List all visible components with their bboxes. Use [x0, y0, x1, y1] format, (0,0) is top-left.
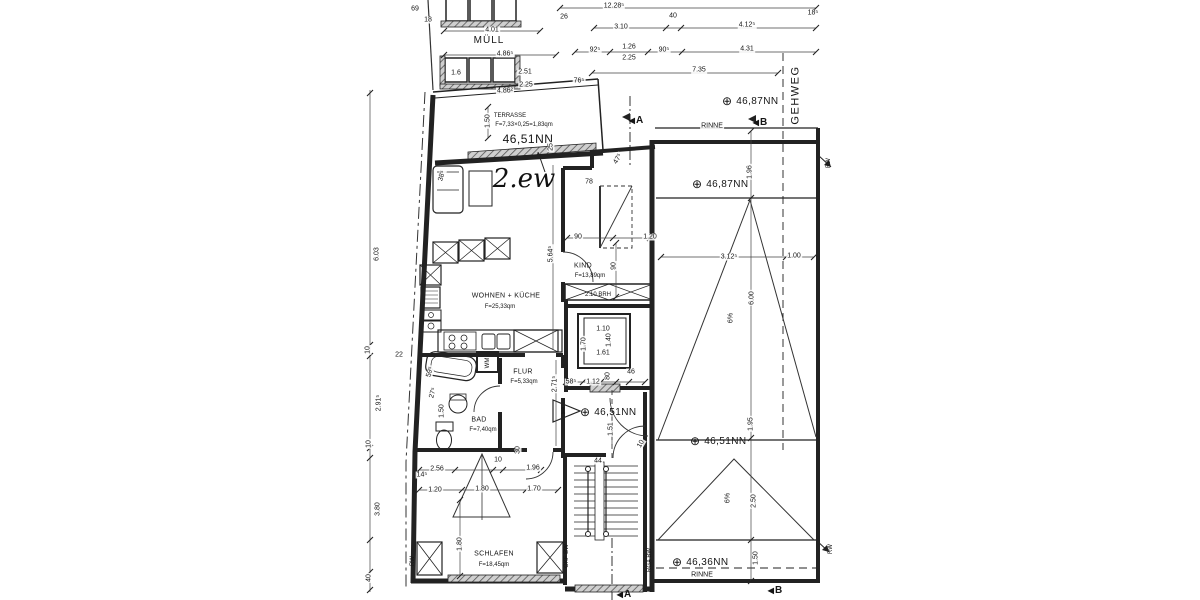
- floorplan-canvas: 69184.01MÜLL4.86⁵1.62.512.254.86²2612.28…: [0, 0, 1200, 600]
- roof-slope-lines: [658, 200, 816, 540]
- muell-bins: [440, 0, 521, 89]
- staircase: [574, 390, 643, 592]
- bathroom-fixtures: [424, 350, 498, 450]
- floorplan-drawing: [0, 0, 1200, 600]
- elevator-shaft: [565, 284, 653, 392]
- chimney-blocks: [417, 542, 563, 582]
- kitchen-fixtures: [420, 238, 562, 352]
- living-furniture: [433, 166, 492, 213]
